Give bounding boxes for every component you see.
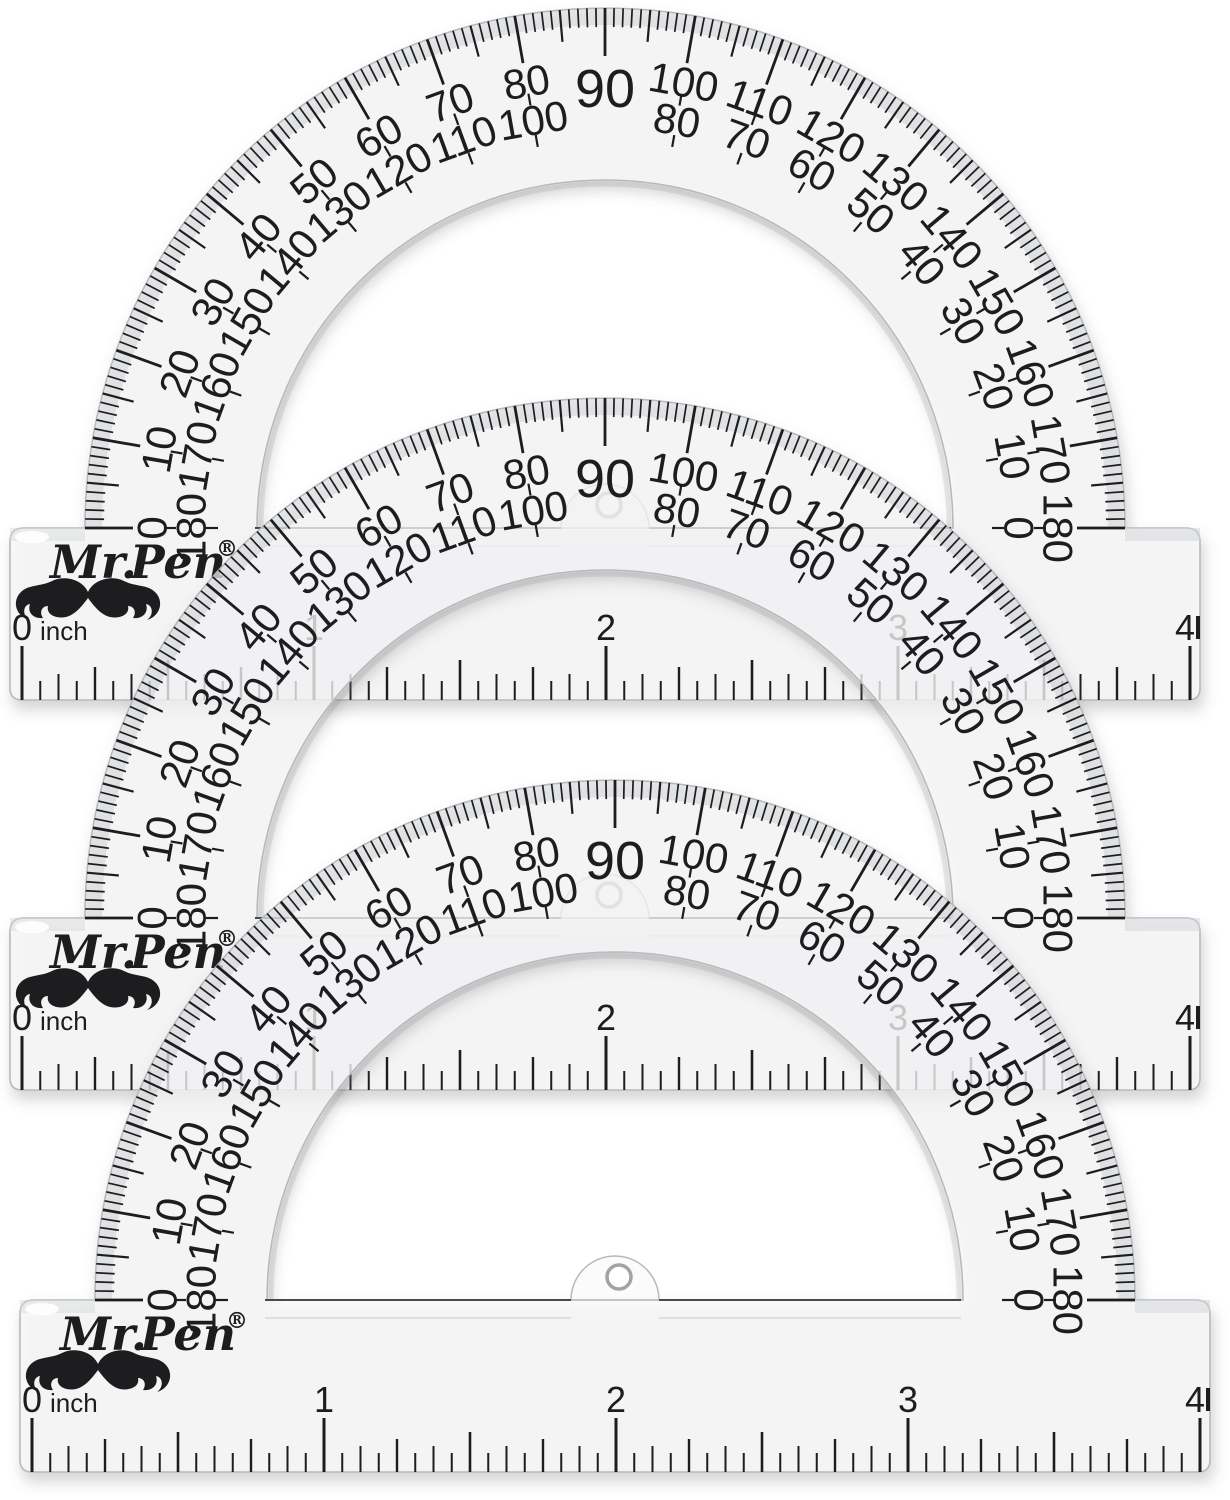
apex-label-90: 90: [585, 831, 645, 891]
svg-text:4: 4: [1175, 607, 1195, 648]
apex-label-90: 90: [575, 59, 635, 119]
corner-highlight: [25, 1303, 59, 1315]
edge-cut-digit-fragment: [1196, 616, 1200, 639]
right-tab-bevel: [1125, 528, 1200, 541]
svg-text:4: 4: [1185, 1379, 1205, 1420]
svg-text:0: 0: [1005, 1288, 1052, 1311]
svg-text:4: 4: [1175, 997, 1195, 1038]
svg-text:2: 2: [606, 1379, 626, 1420]
svg-text:10: 10: [985, 429, 1039, 483]
svg-text:90: 90: [585, 831, 645, 891]
edge-cut-digit-fragment: [1196, 1006, 1200, 1029]
origin-hole: [607, 1265, 631, 1289]
edge-cut-digit-fragment: [1206, 1388, 1210, 1411]
inch-unit-label: inch: [40, 1006, 88, 1036]
corner-highlight: [15, 531, 49, 543]
inch-unit-label: inch: [40, 616, 88, 646]
svg-text:80: 80: [650, 93, 704, 147]
protractor-top: 0102030405060708010011012013014015016017…: [10, 8, 1200, 700]
right-tab-bevel: [1125, 918, 1200, 931]
svg-text:80: 80: [650, 483, 704, 537]
svg-text:0: 0: [995, 906, 1042, 929]
svg-text:0: 0: [995, 516, 1042, 539]
corner-highlight: [15, 921, 49, 933]
svg-text:2: 2: [596, 607, 616, 648]
product-photo-canvas: 0102030405060708010011012013014015016017…: [0, 0, 1230, 1500]
apex-label-90: 90: [575, 449, 635, 509]
svg-text:1: 1: [314, 1379, 334, 1420]
registered-mark: ®: [226, 1308, 248, 1334]
svg-text:80: 80: [660, 865, 714, 919]
svg-text:3: 3: [898, 1379, 918, 1420]
svg-text:2: 2: [596, 997, 616, 1038]
svg-text:10: 10: [985, 819, 1039, 873]
brand-logo-main: Pen: [128, 925, 226, 979]
protractor-product-photo: 0102030405060708010011012013014015016017…: [0, 0, 1230, 1500]
inch-unit-label: inch: [50, 1388, 98, 1418]
brand-logo-main: Pen: [138, 1307, 236, 1361]
right-tab-bevel: [1135, 1300, 1210, 1313]
svg-text:10: 10: [995, 1201, 1049, 1255]
svg-text:90: 90: [575, 449, 635, 509]
svg-text:90: 90: [575, 59, 635, 119]
